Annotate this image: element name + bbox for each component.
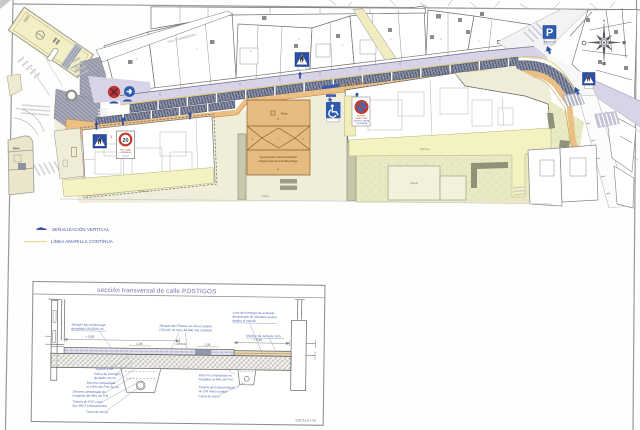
svg-text:(10x1x8, tia tad y tla tad) un: (10x1x8, tia tad y tla tad) una cotizada <box>159 328 212 333</box>
svg-text:1,06: 1,06 <box>204 343 210 347</box>
svg-text:ambos al exterior: ambos al exterior <box>232 319 256 323</box>
svg-text:ESCALA 1:50: ESCALA 1:50 <box>295 418 316 422</box>
svg-text:1,06: 1,06 <box>136 342 142 346</box>
svg-text:Postigos: Postigos <box>138 189 149 193</box>
svg-text:+ 0,40: + 0,40 <box>253 338 262 342</box>
svg-text:20: 20 <box>123 138 129 144</box>
svg-text:Cama de arena: Cama de arena <box>198 394 220 398</box>
svg-text:Mortero de cemento 3cm.: Mortero de cemento 3cm. <box>246 334 281 338</box>
svg-text:Iglesia: Iglesia <box>410 181 419 185</box>
svg-text:Ayuntamiento Casa Consistorial: Ayuntamiento Casa Consistorial <box>260 155 297 159</box>
svg-text:LIMITADA EN: LIMITADA EN <box>120 151 132 154</box>
svg-text:Parking: Parking <box>420 147 430 151</box>
svg-text:dosripién 10 cm.: dosripién 10 cm. <box>94 376 117 380</box>
svg-text:SEÑALIZACIÓN VERTICAL: SEÑALIZACIÓN VERTICAL <box>52 227 110 232</box>
svg-text:tipo 400 S (saneamiento): tipo 400 S (saneamiento) <box>72 404 107 408</box>
svg-text:P: P <box>546 27 553 39</box>
svg-text:N: N <box>603 19 606 23</box>
svg-text:+ 3,30: + 3,30 <box>85 335 94 339</box>
svg-text:granallado 20x20x8 cm.: granallado 20x20x8 cm. <box>71 327 104 331</box>
svg-text:tongadas al 98% del P.M.: tongadas al 98% del P.M. <box>199 377 234 381</box>
svg-text:travesía: travesía <box>122 155 130 158</box>
svg-text:variable: variable <box>175 342 186 346</box>
svg-text:Y DESCARGA: Y DESCARGA <box>356 122 369 125</box>
svg-text:Iglesia: Iglesia <box>13 148 20 150</box>
svg-text:Cama de arena: Cama de arena <box>86 410 108 414</box>
svg-text:Plaza: Plaza <box>281 112 288 116</box>
svg-text:LÍNEA AMARILLA CONTÍNUA: LÍNEA AMARILLA CONTÍNUA <box>51 239 113 244</box>
svg-text:Antigua Casa de la familia Art: Antigua Casa de la familia Artiaga <box>259 159 298 163</box>
svg-text:Plaza: Plaza <box>262 194 269 198</box>
svg-text:tongadas del 98% del P.M.: tongadas del 98% del P.M. <box>72 394 109 398</box>
svg-text:MOTOS: MOTOS <box>544 40 555 44</box>
